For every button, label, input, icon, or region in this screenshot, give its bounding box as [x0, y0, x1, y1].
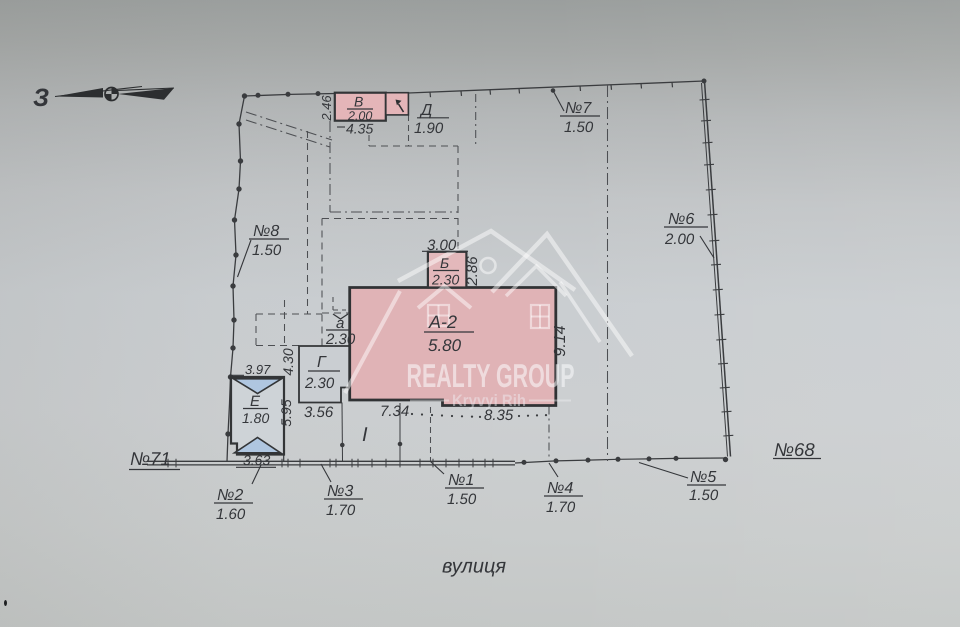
svg-text:№68: №68 [774, 439, 815, 460]
svg-text:Д: Д [419, 102, 432, 119]
svg-text:1.50: 1.50 [689, 487, 719, 504]
svg-text:№6: №6 [668, 211, 694, 228]
svg-text:1.90: 1.90 [414, 120, 444, 137]
svg-text:1.50: 1.50 [252, 242, 282, 259]
svg-text:8.35: 8.35 [484, 407, 514, 424]
svg-text:I: I [362, 424, 368, 446]
svg-text:REALTY GROUP: REALTY GROUP [407, 357, 575, 394]
svg-text:Б: Б [440, 255, 449, 271]
svg-text:Е: Е [250, 393, 261, 410]
svg-text:2.00: 2.00 [664, 231, 695, 248]
svg-text:4.35: 4.35 [346, 121, 373, 137]
svg-text:3.63: 3.63 [243, 452, 270, 468]
svg-text:5.95: 5.95 [278, 399, 294, 426]
svg-text:№71: №71 [130, 448, 171, 469]
svg-text:В: В [354, 94, 363, 110]
svg-text:№2: №2 [217, 487, 243, 504]
svg-text:1.80: 1.80 [242, 410, 269, 426]
svg-text:4.30: 4.30 [280, 348, 296, 375]
svg-text:№7: №7 [565, 100, 592, 117]
svg-text:№1: №1 [448, 472, 474, 489]
svg-text:1.70: 1.70 [546, 499, 576, 516]
svg-text:№3: №3 [327, 483, 353, 500]
svg-text:2.86: 2.86 [464, 256, 481, 287]
svg-text:вулиця: вулиця [442, 556, 506, 578]
svg-text:3.56: 3.56 [304, 404, 334, 421]
svg-text:Г: Г [317, 354, 327, 371]
svg-text:1.60: 1.60 [216, 506, 246, 523]
svg-text:З: З [33, 84, 49, 112]
svg-text:№8: №8 [253, 223, 279, 240]
svg-text:2.30: 2.30 [304, 375, 335, 392]
svg-text:5.80: 5.80 [428, 336, 462, 355]
svg-text:№4: №4 [547, 480, 573, 497]
svg-text:7.34: 7.34 [380, 403, 409, 420]
svg-text:2.30: 2.30 [325, 331, 356, 348]
svg-text:А-2: А-2 [428, 312, 457, 332]
svg-text:3.97: 3.97 [245, 362, 271, 377]
svg-text:2.46: 2.46 [319, 95, 334, 122]
svg-text:№5: №5 [690, 469, 716, 486]
svg-text:9.14: 9.14 [552, 325, 569, 356]
svg-text:1.50: 1.50 [564, 119, 594, 136]
svg-text:1.70: 1.70 [326, 502, 356, 519]
svg-text:2.30: 2.30 [431, 272, 459, 288]
svg-text:1.50: 1.50 [447, 491, 477, 508]
